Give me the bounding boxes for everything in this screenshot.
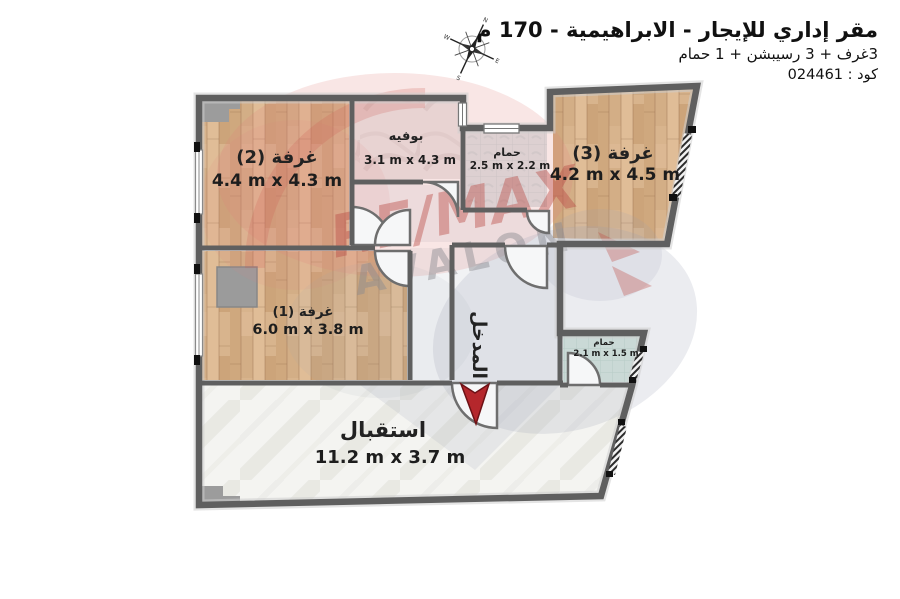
listing-code: كود : 024461	[476, 67, 878, 83]
page-subtitle: 3غرف + 3 رسيبشن + 1 حمام	[476, 45, 878, 63]
header: مقر إداري للإيجار - الابراهيمية - 170 م …	[476, 18, 878, 83]
page-title: مقر إداري للإيجار - الابراهيمية - 170 م	[476, 18, 878, 42]
floorplan-image: RE/MAX AVALON	[0, 0, 900, 599]
floorplan-drawing: RE/MAX AVALON	[0, 0, 900, 599]
svg-text:W: W	[442, 33, 450, 42]
